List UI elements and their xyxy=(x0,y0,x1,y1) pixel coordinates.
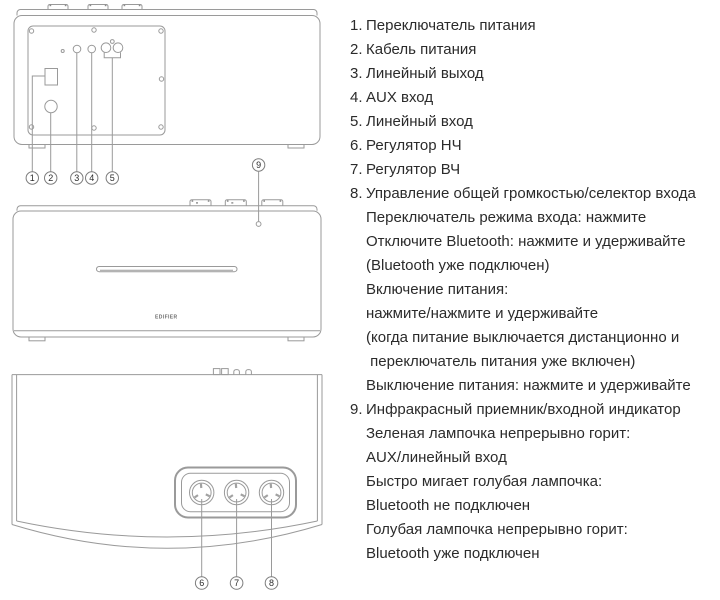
parts-list-item: 9.Инфракрасный приемник/входной индикато… xyxy=(350,398,716,566)
item-lines: Инфракрасный приемник/входной индикаторЗ… xyxy=(366,398,716,566)
item-line: Включение питания: xyxy=(366,278,716,302)
item-line: Bluetooth не подключен xyxy=(366,494,716,518)
item-number: 7. xyxy=(350,158,366,182)
item-number: 1. xyxy=(350,14,366,38)
parts-list-item: 7.Регулятор ВЧ xyxy=(350,158,716,182)
svg-text:4: 4 xyxy=(89,173,94,183)
parts-list-item: 1.Переключатель питания xyxy=(350,14,716,38)
parts-list-item: 2.Кабель питания xyxy=(350,38,716,62)
item-line: AUX/линейный вход xyxy=(366,446,716,470)
svg-text:9: 9 xyxy=(256,160,261,170)
callout-leaders-top xyxy=(202,499,272,577)
svg-text:1: 1 xyxy=(30,173,35,183)
knob-top-tabs-back xyxy=(48,5,142,10)
power-switch xyxy=(45,69,58,86)
item-lines: Управление общей громкостью/селектор вхо… xyxy=(366,182,716,398)
item-lines: Переключатель питания xyxy=(366,14,716,38)
item-number: 6. xyxy=(350,134,366,158)
knob-panel-outer xyxy=(175,468,296,518)
item-line: Переключатель режима входа: нажмите xyxy=(366,206,716,230)
item-number: 3. xyxy=(350,62,366,86)
item-line: Быстро мигает голубая лампочка: xyxy=(366,470,716,494)
svg-text:3: 3 xyxy=(74,173,79,183)
item-line: Переключатель питания xyxy=(366,14,716,38)
top-edge-band-front xyxy=(17,206,317,211)
svg-text:2: 2 xyxy=(48,173,53,183)
back-feet xyxy=(29,145,304,149)
item-line: Кабель питания xyxy=(366,38,716,62)
callout-6: 6 xyxy=(195,577,208,590)
speaker-front-view: 9 EDIFIER xyxy=(13,159,321,341)
callout-3: 3 xyxy=(71,172,83,184)
back-connector-panel xyxy=(28,26,165,135)
item-line: Голубая лампочка непрерывно горит: xyxy=(366,518,716,542)
item-lines: Линейный выход xyxy=(366,62,716,86)
knob-top-tabs-front xyxy=(190,200,283,206)
item-line: Зеленая лампочка непрерывно горит: xyxy=(366,422,716,446)
item-lines: Регулятор ВЧ xyxy=(366,158,716,182)
item-number: 2. xyxy=(350,38,366,62)
item-number: 4. xyxy=(350,86,366,110)
callout-7: 7 xyxy=(230,577,243,590)
item-number: 9. xyxy=(350,398,366,566)
svg-text:5: 5 xyxy=(110,173,115,183)
speaker-diagram-panel: 1 2 3 4 5 9 xyxy=(0,0,340,600)
parts-list-item: 4.AUX вход xyxy=(350,86,716,110)
panel-screws xyxy=(29,28,163,130)
parts-list: 1.Переключатель питания2.Кабель питания3… xyxy=(350,14,716,566)
line-out-jack xyxy=(73,45,81,53)
callout-8: 8 xyxy=(265,577,278,590)
callout-4: 4 xyxy=(86,172,98,184)
item-number: 8. xyxy=(350,182,366,398)
item-lines: AUX вход xyxy=(366,86,716,110)
svg-text:7: 7 xyxy=(234,578,239,588)
item-line: Регулятор НЧ xyxy=(366,134,716,158)
parts-list-item: 6.Регулятор НЧ xyxy=(350,134,716,158)
svg-text:6: 6 xyxy=(199,578,204,588)
knob-panel-inner xyxy=(182,473,290,511)
speaker-back-view: 1 2 3 4 5 xyxy=(14,5,320,185)
item-line: (когда питание выключается дистанционно … xyxy=(366,326,716,350)
item-line: Выключение питания: нажмите и удерживайт… xyxy=(366,374,716,398)
item-line: Bluetooth уже подключен xyxy=(366,542,716,566)
parts-list-item: 8.Управление общей громкостью/селектор в… xyxy=(350,182,716,398)
item-line: (Bluetooth уже подключен) xyxy=(366,254,716,278)
speaker-top-view: 6 7 8 xyxy=(12,369,322,590)
item-line: нажмите/нажмите и удерживайте xyxy=(366,302,716,326)
top-edge-band xyxy=(17,10,317,16)
item-line: Управление общей громкостью/селектор вхо… xyxy=(366,182,716,206)
item-number: 5. xyxy=(350,110,366,134)
item-line: Регулятор ВЧ xyxy=(366,158,716,182)
callout-1: 1 xyxy=(26,172,38,184)
item-lines: Кабель питания xyxy=(366,38,716,62)
display-slot xyxy=(97,267,238,272)
callout-9: 9 xyxy=(252,159,264,222)
line-in-ports xyxy=(101,40,123,58)
svg-text:8: 8 xyxy=(269,578,274,588)
item-lines: Регулятор НЧ xyxy=(366,134,716,158)
item-line: Линейный вход xyxy=(366,110,716,134)
parts-list-item: 5.Линейный вход xyxy=(350,110,716,134)
parts-list-item: 3.Линейный выход xyxy=(350,62,716,86)
top-body-outline xyxy=(12,375,322,549)
item-lines: Линейный вход xyxy=(366,110,716,134)
edifier-logo: EDIFIER xyxy=(155,315,178,321)
power-cable-port xyxy=(45,100,57,112)
aux-in-jack xyxy=(88,45,96,53)
item-line: Линейный выход xyxy=(366,62,716,86)
item-line: AUX вход xyxy=(366,86,716,110)
front-feet xyxy=(29,337,304,341)
item-line: переключатель питания уже включен) xyxy=(366,350,716,374)
ir-receiver-indicator xyxy=(256,222,261,227)
item-line: Инфракрасный приемник/входной индикатор xyxy=(366,398,716,422)
rear-connector-cutouts xyxy=(213,369,251,375)
speaker-diagram: 1 2 3 4 5 9 xyxy=(0,0,340,600)
callout-2: 2 xyxy=(45,172,57,184)
callout-leaders-back xyxy=(32,53,112,172)
back-body xyxy=(14,16,320,145)
callout-5: 5 xyxy=(106,172,118,184)
item-line: Отключите Bluetooth: нажмите и удерживай… xyxy=(366,230,716,254)
